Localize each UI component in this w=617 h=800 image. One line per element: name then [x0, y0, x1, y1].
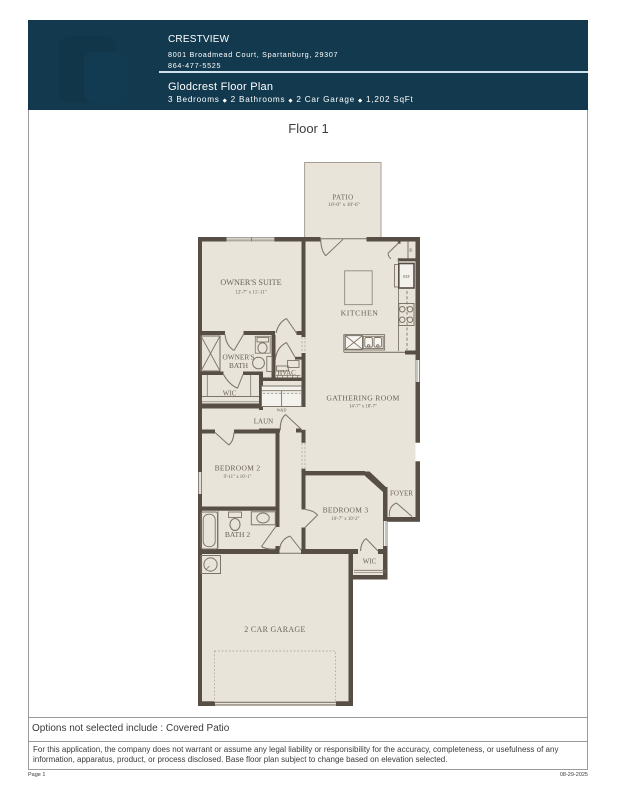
svg-text:GATHERING ROOM: GATHERING ROOM	[326, 394, 399, 403]
svg-text:PATIO: PATIO	[332, 194, 353, 202]
svg-text:FOYER: FOYER	[390, 490, 413, 498]
svg-text:HVAC: HVAC	[277, 370, 296, 377]
svg-text:REF: REF	[403, 275, 410, 279]
svg-text:W&D: W&D	[277, 408, 287, 413]
svg-text:BATH: BATH	[229, 361, 249, 370]
svg-text:BEDROOM 2: BEDROOM 2	[215, 464, 261, 473]
svg-text:P.: P.	[409, 249, 412, 254]
svg-text:10'-0" x 10'-6": 10'-0" x 10'-6"	[328, 202, 360, 208]
svg-text:KITCHEN: KITCHEN	[341, 309, 379, 318]
svg-text:9'-11" x 10'-1": 9'-11" x 10'-1"	[224, 475, 252, 480]
svg-text:BEDROOM 3: BEDROOM 3	[323, 506, 369, 515]
svg-text:10'-7" x 10'-2": 10'-7" x 10'-2"	[331, 517, 359, 522]
svg-text:12'-7" x 11'-11": 12'-7" x 11'-11"	[235, 291, 266, 296]
svg-text:BATH 2: BATH 2	[225, 530, 250, 539]
svg-text:2 CAR GARAGE: 2 CAR GARAGE	[244, 625, 305, 634]
svg-text:OWNER'S SUITE: OWNER'S SUITE	[220, 278, 281, 287]
svg-text:LAUN: LAUN	[254, 418, 273, 426]
svg-text:14'-7" x 18'-7": 14'-7" x 18'-7"	[349, 405, 377, 410]
svg-text:WIC: WIC	[363, 558, 377, 566]
svg-text:WIC: WIC	[223, 390, 237, 398]
